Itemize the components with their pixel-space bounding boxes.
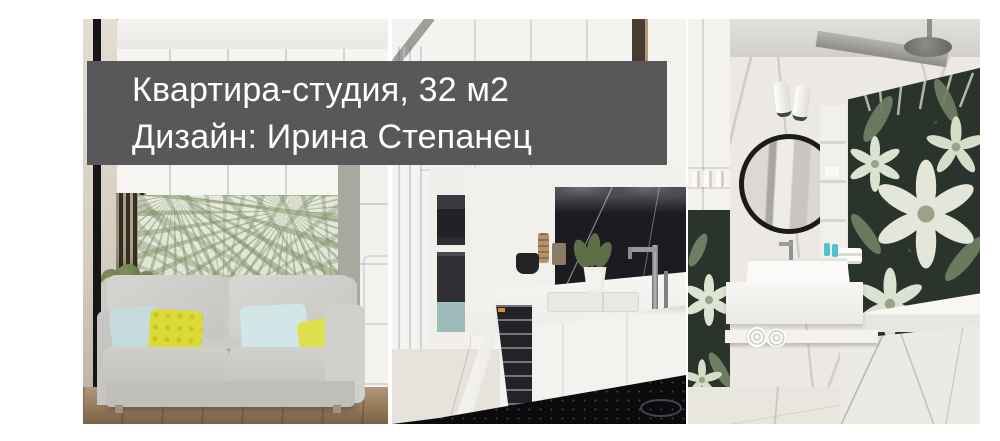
vessel-sink <box>746 258 850 284</box>
sofa-leg <box>115 405 123 413</box>
black-jar <box>516 253 539 274</box>
wood-canister <box>552 243 566 265</box>
faucet-spout <box>779 242 793 246</box>
banner-title: Квартира-студия, 32 м2 <box>132 67 667 114</box>
built-in-oven <box>437 252 465 332</box>
faucet-sprayer <box>664 271 668 309</box>
floral-mosaic-left <box>688 210 730 414</box>
cabinets-over-backsplash <box>555 165 686 189</box>
cooktop-ring <box>640 399 682 417</box>
rolled-towel <box>766 329 787 347</box>
acrylic-chair <box>363 255 388 399</box>
kitchen-sink <box>547 292 639 312</box>
shelf-bottles <box>692 171 724 187</box>
wood-candlestick <box>538 233 549 263</box>
teal-bottle <box>824 243 830 256</box>
faucet-outlet <box>628 247 632 259</box>
faucet-body <box>652 245 658 309</box>
sofa-leg <box>333 405 341 413</box>
floating-vanity <box>726 282 863 324</box>
collage-canvas: Квартира-студия, 32 м2 Дизайн: Ирина Сте… <box>0 0 1000 441</box>
dishwasher-detail <box>498 308 505 312</box>
rain-shower-head <box>904 37 952 57</box>
wall-sconce <box>792 84 811 122</box>
banner-subtitle: Дизайн: Ирина Степанец <box>132 114 667 161</box>
rolled-towel <box>746 327 768 347</box>
faucet-spout <box>628 247 656 252</box>
bathroom-photo <box>688 19 980 424</box>
niche-item <box>825 167 839 177</box>
coffee-machine <box>437 195 465 245</box>
sofa-base <box>105 381 355 407</box>
title-banner: Квартира-студия, 32 м2 Дизайн: Ирина Сте… <box>87 61 667 165</box>
wall-above-counter <box>470 167 560 297</box>
cabinet-slot <box>632 19 648 65</box>
wall-sconce <box>773 80 792 118</box>
